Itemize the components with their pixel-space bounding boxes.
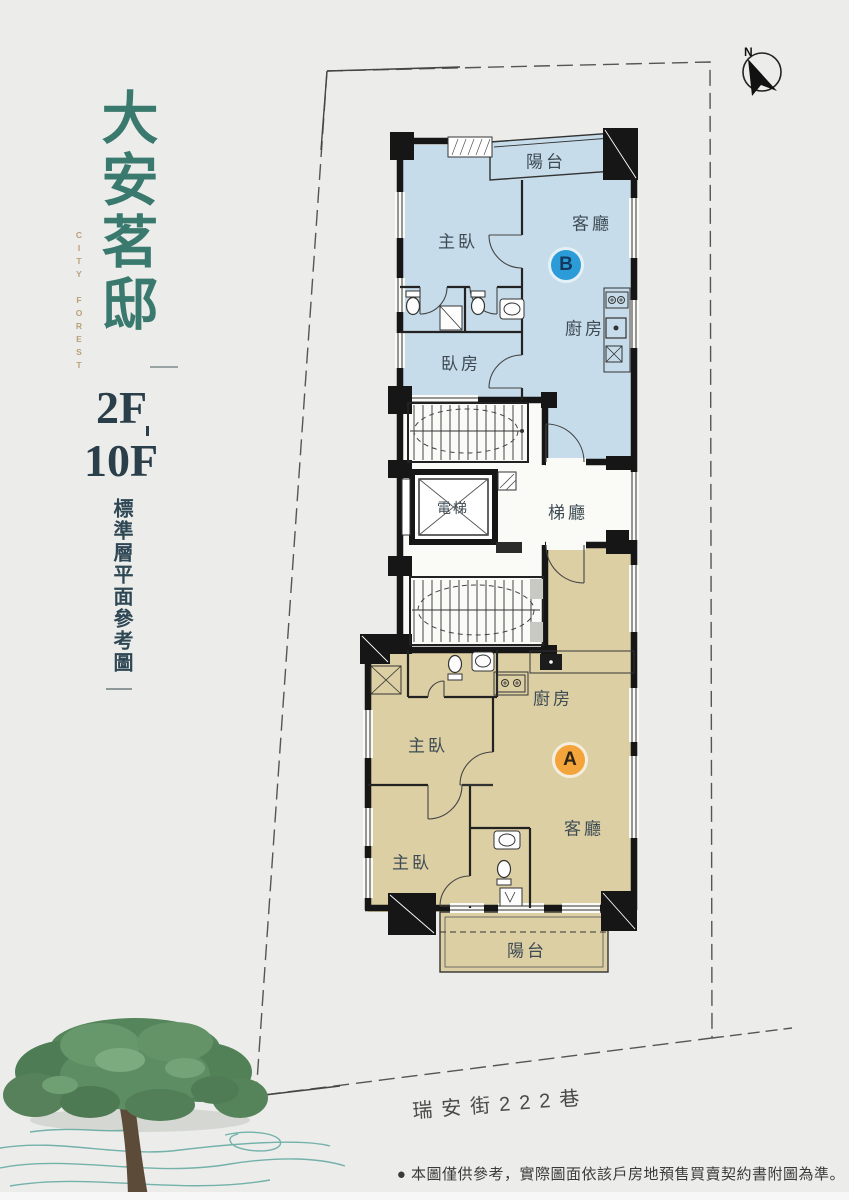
divider-bottom bbox=[106, 688, 132, 690]
label-unit-b-kitchen: 廚房 bbox=[565, 315, 605, 340]
unit-a-badge: A bbox=[552, 742, 588, 778]
contour-swirls bbox=[0, 1129, 345, 1186]
tree-illustration bbox=[0, 1018, 345, 1196]
toilet-icon bbox=[471, 291, 485, 297]
page-edge bbox=[0, 1192, 849, 1200]
label-unit-a-living: 客廳 bbox=[564, 815, 604, 840]
floorplan-poster: N bbox=[0, 0, 849, 1200]
divider-top bbox=[150, 366, 178, 368]
label-unit-a-master1: 主臥 bbox=[408, 732, 448, 757]
unit-b-badge: B bbox=[548, 247, 584, 283]
label-elevator: 電梯 bbox=[437, 498, 469, 518]
disclaimer-text: ● 本圖僅供參考，實際圖面依該戶房地預售買賣契約書附圖為準。 bbox=[397, 1163, 845, 1184]
floor-from: 2F bbox=[96, 385, 147, 431]
floor-to: 10F bbox=[84, 438, 158, 484]
compass-n-label: N bbox=[744, 45, 753, 59]
project-subtitle-en: CITY FOREST bbox=[74, 230, 84, 373]
label-unit-b-bedroom: 臥房 bbox=[441, 350, 481, 375]
hatched-panel bbox=[448, 137, 492, 157]
label-unit-a-kitchen: 廚房 bbox=[533, 685, 573, 710]
project-title: 大安茗邸 bbox=[96, 88, 153, 336]
utility-label-box bbox=[496, 542, 522, 553]
toilet-icon bbox=[498, 861, 511, 878]
toilet-icon bbox=[449, 656, 462, 673]
label-unit-a-balcony: 陽台 bbox=[507, 937, 547, 962]
label-unit-b-master: 主臥 bbox=[438, 228, 478, 253]
label-unit-a-master2: 主臥 bbox=[392, 849, 432, 874]
building bbox=[360, 128, 639, 972]
label-stair-lobby: 梯廳 bbox=[548, 499, 588, 524]
toilet-icon bbox=[406, 291, 420, 297]
north-compass: N bbox=[743, 45, 781, 96]
label-unit-b-living: 客廳 bbox=[572, 210, 612, 235]
tree-canopy bbox=[3, 1018, 268, 1121]
label-unit-b-balcony: 陽台 bbox=[526, 148, 566, 173]
plan-caption: 標準層平面參考圖 bbox=[107, 498, 136, 674]
